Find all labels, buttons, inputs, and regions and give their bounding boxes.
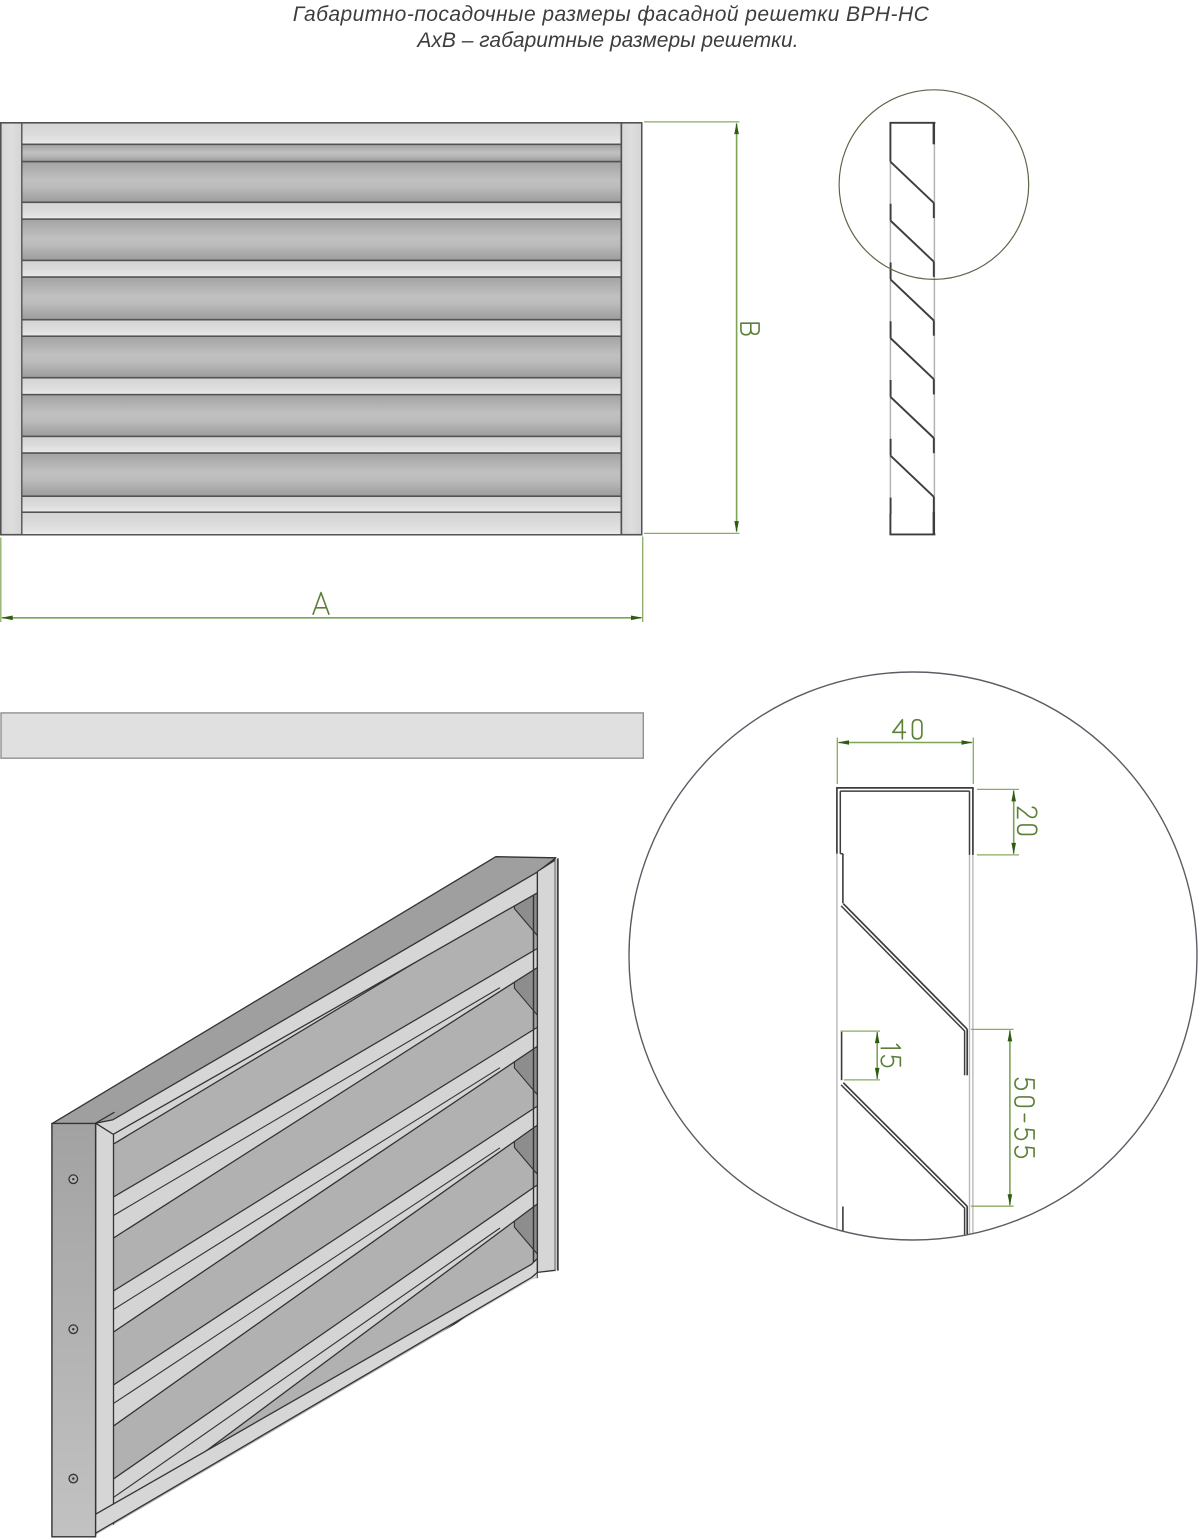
svg-text:АхВ – габаритные размеры решет: АхВ – габаритные размеры решетки. (415, 29, 798, 52)
svg-text:Габаритно-посадочные размеры ф: Габаритно-посадочные размеры фасадной ре… (293, 3, 930, 26)
